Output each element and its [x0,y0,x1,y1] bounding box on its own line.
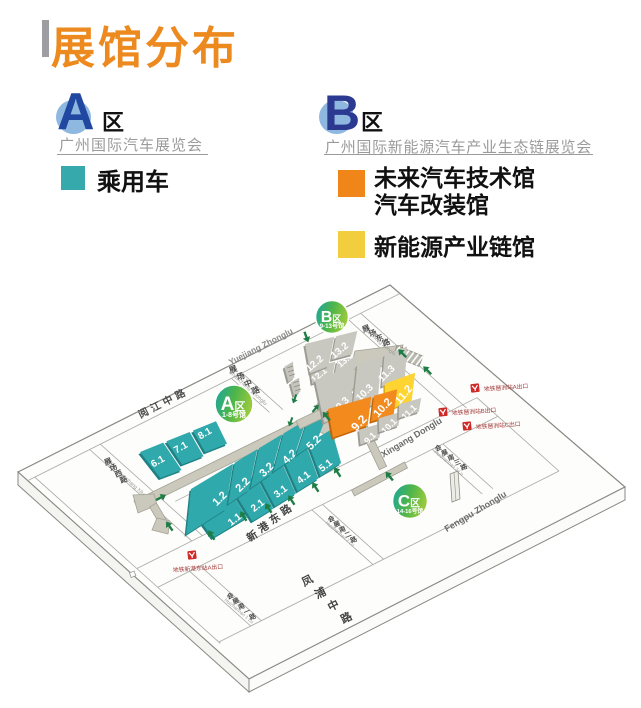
svg-text:14-16号馆: 14-16号馆 [397,507,424,515]
svg-text:9-13号馆: 9-13号馆 [320,322,345,330]
svg-text:1-8号馆: 1-8号馆 [222,410,246,419]
